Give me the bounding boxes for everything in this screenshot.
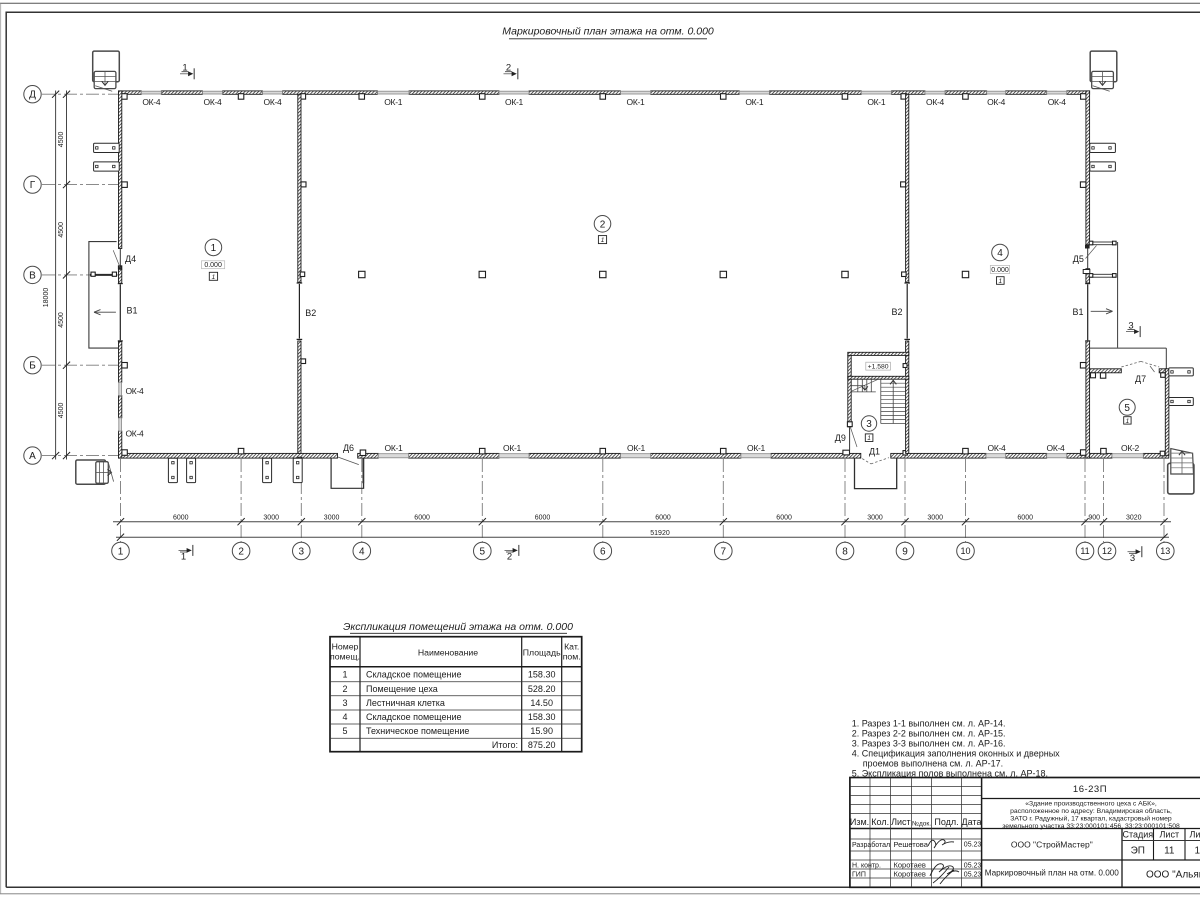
svg-text:ОК-4: ОК-4 <box>926 97 944 107</box>
svg-text:10: 10 <box>960 546 970 556</box>
svg-text:12: 12 <box>1102 546 1112 556</box>
svg-text:4500: 4500 <box>58 132 65 148</box>
svg-text:3020: 3020 <box>1126 514 1142 521</box>
svg-text:Д7: Д7 <box>1135 374 1146 384</box>
svg-text:Техническое помещение: Техническое помещение <box>366 726 469 736</box>
svg-text:Д5: Д5 <box>1073 254 1084 264</box>
svg-text:Площадь: Площадь <box>523 648 561 658</box>
svg-text:6000: 6000 <box>776 514 792 521</box>
svg-text:3: 3 <box>1130 553 1135 564</box>
svg-text:Лестничная клетка: Лестничная клетка <box>366 698 445 708</box>
svg-text:Лист: Лист <box>891 817 911 827</box>
svg-text:Маркировочный план на отм. 0.0: Маркировочный план на отм. 0.000 <box>985 869 1120 878</box>
svg-text:3: 3 <box>342 698 347 708</box>
svg-text:Номер: Номер <box>332 642 359 652</box>
svg-text:Лис: Лис <box>1190 829 1200 839</box>
svg-text:6000: 6000 <box>414 514 430 521</box>
svg-text:9: 9 <box>902 547 908 558</box>
svg-text:ОК-1: ОК-1 <box>627 443 645 453</box>
svg-text:11: 11 <box>1164 846 1175 857</box>
svg-text:1: 1 <box>1195 846 1200 857</box>
svg-text:ЭП: ЭП <box>1131 846 1145 857</box>
svg-text:«Здание производственного цеха: «Здание производственного цеха с АБК», <box>1025 800 1157 807</box>
svg-text:ОК-4: ОК-4 <box>126 429 144 439</box>
svg-text:2: 2 <box>600 219 606 230</box>
svg-text:1: 1 <box>212 274 216 281</box>
svg-text:Складское помещение: Складское помещение <box>366 712 461 722</box>
svg-text:05.23: 05.23 <box>964 871 982 878</box>
svg-text:ОК-4: ОК-4 <box>1048 97 1066 107</box>
svg-text:1. Разрез 1-1 выполнен см. л.: 1. Разрез 1-1 выполнен см. л. АР-14. <box>852 718 1006 728</box>
svg-text:13: 13 <box>1160 546 1170 556</box>
svg-text:Коротаев: Коротаев <box>894 860 926 869</box>
svg-text:ОК-4: ОК-4 <box>988 443 1006 453</box>
svg-text:Д9: Д9 <box>835 433 846 443</box>
svg-text:ГИП: ГИП <box>852 871 866 878</box>
svg-text:Лист: Лист <box>1160 829 1180 839</box>
svg-text:4. Спецификация заполнения око: 4. Спецификация заполнения оконных и две… <box>852 748 1060 758</box>
svg-text:15.90: 15.90 <box>530 726 553 736</box>
svg-text:Разработал: Разработал <box>852 841 890 849</box>
svg-text:ОК-1: ОК-1 <box>747 443 765 453</box>
svg-text:Б: Б <box>29 361 36 372</box>
svg-text:6000: 6000 <box>173 514 189 521</box>
svg-text:0.000: 0.000 <box>991 267 1009 274</box>
svg-text:1: 1 <box>181 552 186 563</box>
svg-text:Дата: Дата <box>962 817 982 827</box>
svg-text:7: 7 <box>721 547 727 558</box>
svg-text:2. Разрез 2-2 выполнен см. л.: 2. Разрез 2-2 выполнен см. л. АР-15. <box>852 728 1006 738</box>
svg-text:4500: 4500 <box>58 403 65 419</box>
svg-text:Наименование: Наименование <box>418 648 478 658</box>
svg-text:№док.: №док. <box>912 821 931 828</box>
svg-text:ОК-1: ОК-1 <box>745 97 763 107</box>
svg-text:ЗАТО г. Радужный, 17 квартал,: ЗАТО г. Радужный, 17 квартал, кадастровы… <box>1010 814 1172 822</box>
svg-text:1: 1 <box>601 237 605 244</box>
svg-text:ОК-4: ОК-4 <box>987 97 1005 107</box>
svg-text:Д4: Д4 <box>125 254 136 264</box>
svg-text:2: 2 <box>506 63 511 74</box>
svg-text:Подл.: Подл. <box>934 817 958 827</box>
svg-text:5: 5 <box>342 726 347 736</box>
svg-text:расположенное по адресу: Влади: расположенное по адресу: Владимирская об… <box>1010 807 1172 815</box>
svg-text:18000: 18000 <box>43 288 50 308</box>
svg-text:4500: 4500 <box>58 222 65 238</box>
svg-text:3000: 3000 <box>324 514 340 521</box>
svg-text:ОК-1: ОК-1 <box>627 97 645 107</box>
svg-text:ОК-4: ОК-4 <box>142 97 160 107</box>
svg-text:3: 3 <box>1128 320 1133 331</box>
svg-text:ОК-4: ОК-4 <box>204 97 222 107</box>
svg-text:помещ.: помещ. <box>330 652 360 662</box>
svg-text:Помещение цеха: Помещение цеха <box>366 684 438 694</box>
svg-text:ОК-4: ОК-4 <box>126 386 144 396</box>
svg-text:ОК-1: ОК-1 <box>503 443 521 453</box>
svg-text:земельного участка 33:23:00010: земельного участка 33:23:000101:456, 33:… <box>1002 823 1180 830</box>
svg-text:2: 2 <box>342 684 347 694</box>
svg-text:Изм.: Изм. <box>850 817 869 827</box>
svg-text:Итого:: Итого: <box>492 740 518 750</box>
svg-text:Д1: Д1 <box>869 447 880 457</box>
svg-text:5: 5 <box>1124 403 1130 414</box>
svg-text:3000: 3000 <box>927 514 943 521</box>
svg-text:Коротаев: Коротаев <box>894 869 926 878</box>
svg-text:5: 5 <box>480 547 486 558</box>
svg-text:4500: 4500 <box>58 312 65 328</box>
svg-text:1: 1 <box>182 63 187 74</box>
svg-text:ОК-1: ОК-1 <box>867 97 885 107</box>
svg-text:3000: 3000 <box>263 514 279 521</box>
svg-text:1: 1 <box>867 435 871 442</box>
svg-text:Складское помещение: Складское помещение <box>366 669 461 679</box>
svg-text:6000: 6000 <box>535 514 551 521</box>
svg-text:Кат.: Кат. <box>564 642 579 652</box>
svg-text:ОК-1: ОК-1 <box>505 97 523 107</box>
svg-text:1: 1 <box>998 278 1002 285</box>
svg-text:Д: Д <box>29 90 36 101</box>
svg-text:Стадия: Стадия <box>1122 829 1153 839</box>
svg-text:+1.580: +1.580 <box>868 363 889 370</box>
svg-text:8: 8 <box>842 547 848 558</box>
svg-text:В2: В2 <box>892 307 903 317</box>
svg-text:1: 1 <box>1126 418 1130 425</box>
svg-text:875.20: 875.20 <box>528 740 556 750</box>
svg-text:Экспликация помещений этажа на: Экспликация помещений этажа на отм. 0.00… <box>343 621 573 633</box>
svg-text:ОК-2: ОК-2 <box>1121 443 1139 453</box>
svg-text:Н. контр.: Н. контр. <box>852 862 881 869</box>
svg-text:Маркировочный план этажа на от: Маркировочный план этажа на отм. 0.000 <box>502 26 714 38</box>
svg-text:Кол.: Кол. <box>871 817 889 827</box>
svg-text:3. Разрез 3-3 выполнен см. л.: 3. Разрез 3-3 выполнен см. л. АР-16. <box>852 738 1006 748</box>
svg-text:Г: Г <box>30 180 36 191</box>
svg-text:В2: В2 <box>305 308 316 318</box>
svg-text:ОК-4: ОК-4 <box>264 97 282 107</box>
svg-text:1: 1 <box>342 669 347 679</box>
svg-text:ООО "СтройМастер": ООО "СтройМастер" <box>1011 839 1093 849</box>
svg-text:158.30: 158.30 <box>528 712 556 722</box>
svg-text:В: В <box>29 270 36 281</box>
svg-text:05.23: 05.23 <box>964 842 982 849</box>
svg-text:ООО "Альянс": ООО "Альянс" <box>1146 870 1200 881</box>
svg-text:пом.: пом. <box>563 652 581 662</box>
svg-text:900: 900 <box>1088 514 1100 521</box>
svg-text:ОК-1: ОК-1 <box>385 443 403 453</box>
svg-text:528.20: 528.20 <box>528 684 556 694</box>
svg-text:1: 1 <box>118 547 124 558</box>
svg-text:51920: 51920 <box>650 530 670 537</box>
svg-text:4: 4 <box>342 712 347 722</box>
svg-text:4: 4 <box>359 547 365 558</box>
svg-text:3000: 3000 <box>867 514 883 521</box>
svg-text:16-23П: 16-23П <box>1073 784 1107 795</box>
svg-text:3: 3 <box>866 419 872 430</box>
svg-text:2: 2 <box>238 547 244 558</box>
svg-text:А: А <box>29 451 36 462</box>
svg-text:158.30: 158.30 <box>528 669 556 679</box>
svg-text:6000: 6000 <box>655 514 671 521</box>
svg-text:В1: В1 <box>1073 307 1084 317</box>
svg-text:0.000: 0.000 <box>204 262 222 269</box>
svg-text:11: 11 <box>1080 546 1089 556</box>
svg-text:14.50: 14.50 <box>530 698 553 708</box>
svg-text:6000: 6000 <box>1017 514 1033 521</box>
svg-text:05.23: 05.23 <box>964 862 982 869</box>
svg-text:ОК-1: ОК-1 <box>384 97 402 107</box>
svg-text:Д6: Д6 <box>343 443 354 453</box>
svg-text:3: 3 <box>299 547 305 558</box>
svg-text:1: 1 <box>211 243 217 254</box>
svg-text:2: 2 <box>507 552 512 563</box>
svg-text:6: 6 <box>600 547 606 558</box>
svg-text:4: 4 <box>997 248 1003 259</box>
svg-text:В1: В1 <box>127 306 138 316</box>
svg-text:ОК-4: ОК-4 <box>1047 443 1065 453</box>
svg-text:Решетова: Решетова <box>894 840 929 849</box>
svg-text:проемов выполнена см. л. АР-17: проемов выполнена см. л. АР-17. <box>863 758 1003 768</box>
